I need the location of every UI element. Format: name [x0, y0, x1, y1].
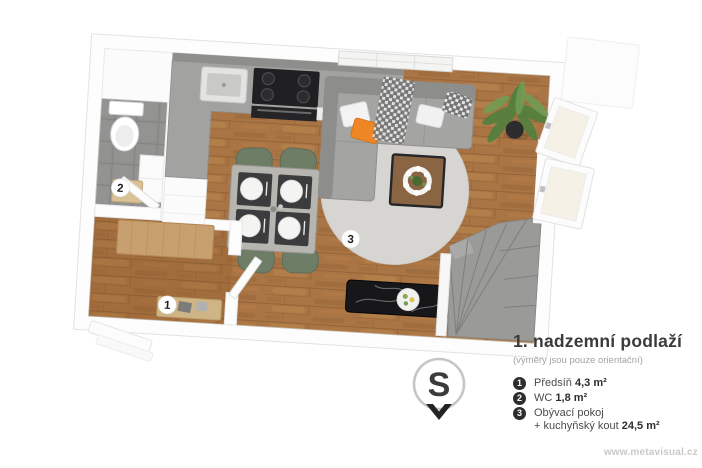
room-area: 1,8 m²: [555, 392, 587, 404]
room-name: WC: [534, 392, 552, 404]
legend-label-wc: WC 1,8 m²: [534, 392, 587, 405]
hallway-wardrobe: [116, 220, 214, 260]
coffee-table: [390, 154, 445, 207]
room-area: 4,3 m²: [575, 377, 607, 389]
exterior-window-panel: [561, 37, 640, 109]
cooktop: [252, 68, 320, 108]
room-name: Obývací pokoj: [534, 407, 604, 419]
compass-letter: S: [428, 366, 451, 404]
legend-badge-1: 1: [513, 377, 526, 390]
legend: 1. nadzemní podlaží (výměry jsou pouze o…: [513, 331, 699, 435]
compass-icon: S: [407, 354, 471, 428]
legend-label-predsin: Předsíň 4,3 m²: [534, 377, 607, 390]
wc-room: [95, 98, 168, 211]
kitchen-corner-cabinet: [102, 49, 173, 103]
toilet-cistern: [109, 101, 144, 116]
legend-label-obyvaci-pokoj: Obývací pokoj + kuchyňský kout 24,5 m²: [534, 407, 660, 433]
legend-title: 1. nadzemní podlaží: [513, 331, 699, 352]
legend-badge-3: 3: [513, 407, 526, 420]
legend-item-predsin: 1 Předsíň 4,3 m²: [513, 377, 699, 390]
watermark: www.metavisual.cz: [604, 447, 698, 458]
room-name: Předsíň: [534, 377, 572, 389]
room-name-line2: + kuchyňský kout 24,5 m²: [534, 420, 660, 432]
legend-item-obyvaci-pokoj: 3 Obývací pokoj + kuchyňský kout 24,5 m²: [513, 407, 699, 433]
legend-badge-2: 2: [513, 392, 526, 405]
legend-subtitle: (výměry jsou pouze orientační): [513, 355, 699, 366]
legend-items: 1 Předsíň 4,3 m² 2 WC 1,8 m² 3 Obývací p…: [513, 377, 699, 433]
legend-item-wc: 2 WC 1,8 m²: [513, 392, 699, 405]
room-area: 24,5 m²: [622, 420, 660, 432]
svg-text:3: 3: [347, 234, 354, 246]
floor-plan-page: 1 2 3 S 1. nadzemní podlaží (výměry jsou…: [0, 0, 702, 468]
room-name-continued: + kuchyňský kout: [534, 420, 619, 432]
svg-text:2: 2: [117, 183, 124, 195]
